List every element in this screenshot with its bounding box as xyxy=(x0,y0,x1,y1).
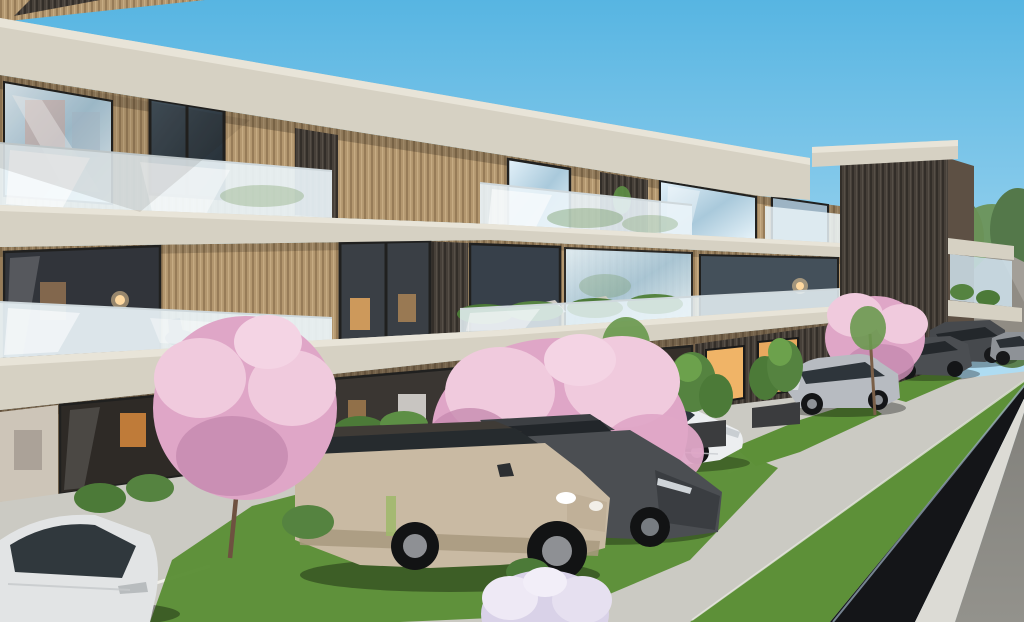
interior-artwork xyxy=(120,413,146,447)
blossom-canopy xyxy=(544,334,616,386)
interior-warm-light xyxy=(350,298,370,330)
interior-lamp xyxy=(796,282,804,290)
wheel xyxy=(947,361,963,377)
sapling-foliage xyxy=(850,306,886,350)
side-balcony-plant xyxy=(950,284,974,300)
hedge-bush xyxy=(74,483,126,513)
balustrade-tree-reflection xyxy=(622,215,678,233)
architectural-render xyxy=(0,0,1024,622)
hedge-bush xyxy=(126,474,174,502)
suv-headlight xyxy=(589,501,603,511)
interior-lamp xyxy=(115,295,125,305)
wheel-rim xyxy=(807,399,817,409)
blossom-canopy xyxy=(154,338,246,418)
foreground-bush xyxy=(282,505,334,539)
balustrade-tree-reflection xyxy=(220,185,304,207)
scene-canvas xyxy=(0,0,1024,622)
interior-warm-light xyxy=(398,294,416,322)
suv-headlight xyxy=(556,492,576,504)
suv-door-badge xyxy=(386,496,396,536)
wall-artwork xyxy=(14,430,42,470)
blossom-canopy xyxy=(523,567,567,597)
wheel-rim xyxy=(542,536,572,566)
window-tree-reflection xyxy=(579,274,631,298)
hedge-bush xyxy=(699,374,733,418)
hedge-bush-highlight xyxy=(768,338,792,366)
blossom-canopy xyxy=(234,315,302,369)
wheel xyxy=(996,351,1010,365)
balustrade-tree-reflection xyxy=(547,208,623,228)
wheel-rim xyxy=(403,534,427,558)
blossom-canopy xyxy=(176,416,288,496)
wheel-rim xyxy=(641,518,659,536)
